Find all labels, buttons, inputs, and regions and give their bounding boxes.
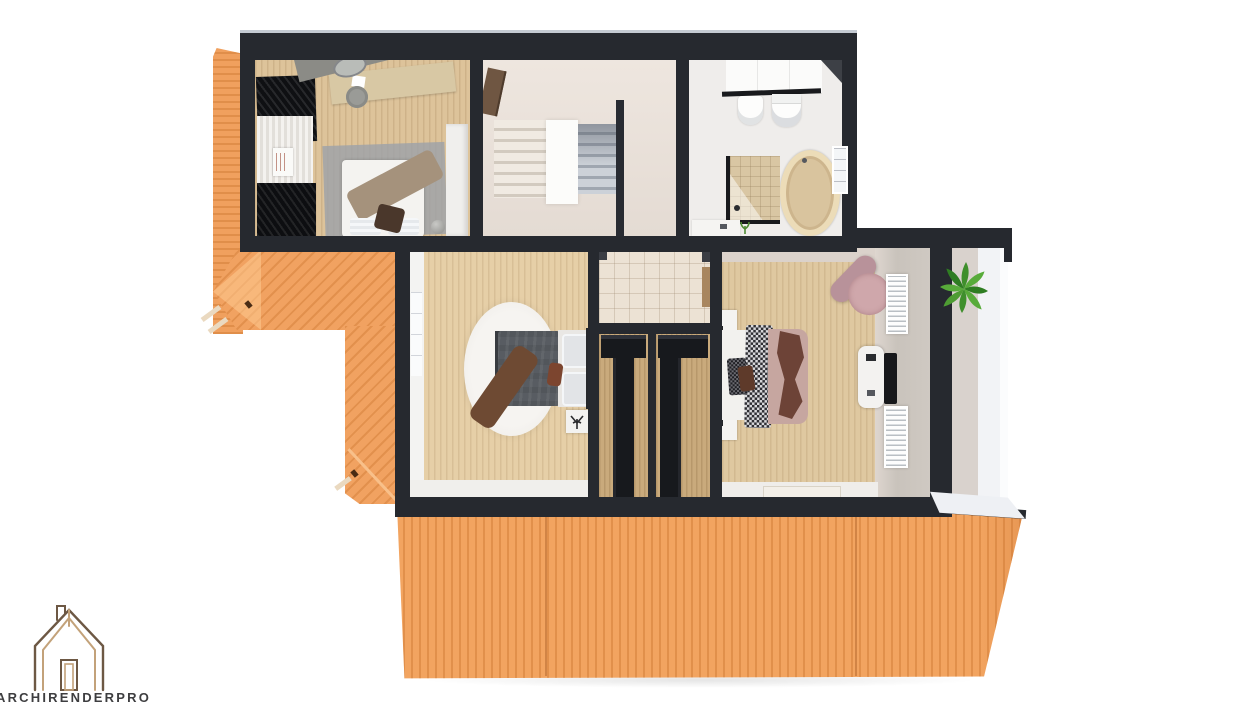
wall-upper-left xyxy=(240,33,255,252)
console-item xyxy=(866,354,876,361)
wall-closet-mid-divider xyxy=(648,334,656,497)
panel-seam xyxy=(789,59,790,93)
floor-plan-render: ARCHIRENDERPRO xyxy=(0,0,1240,720)
wall-divider-bed2-closets xyxy=(588,248,599,497)
watermark-logo: ARCHIRENDERPRO xyxy=(0,594,175,718)
dresser-white xyxy=(273,148,293,176)
wall-upper-bottom xyxy=(240,236,857,252)
bidet xyxy=(738,96,763,125)
shower-glass xyxy=(726,156,780,224)
panel-seam xyxy=(757,59,758,93)
vanity-low xyxy=(692,220,740,236)
wall-lower-bottom xyxy=(395,497,942,517)
room-bedroom-3 xyxy=(722,248,930,497)
wall-face-south xyxy=(410,480,588,497)
roof-seam xyxy=(855,506,857,676)
door-wood xyxy=(702,267,710,307)
wall-closet-hall-divider xyxy=(599,323,710,334)
dresser-louvers xyxy=(276,153,288,171)
wall-divider-stairs-bath xyxy=(676,59,689,236)
watermark-text: ARCHIRENDERPRO xyxy=(0,690,151,705)
wall-upper-right xyxy=(842,33,857,252)
tv xyxy=(884,353,897,404)
room-closet-right xyxy=(656,334,710,497)
shower-head-dark xyxy=(734,205,740,211)
vase-sphere xyxy=(431,220,445,234)
wall-balcony-corner xyxy=(1004,228,1012,262)
staircase-flight-right xyxy=(578,124,618,194)
wardrobe-black-t-column xyxy=(613,358,634,497)
room-stair-hall xyxy=(483,59,676,236)
balcony-floor-rim xyxy=(1000,248,1008,512)
room-bedroom-2 xyxy=(410,248,588,497)
room-closet-left xyxy=(599,334,648,497)
tv-console xyxy=(858,346,884,408)
wardrobe-black xyxy=(257,183,316,236)
cabinet-tall-white xyxy=(446,124,468,236)
wall-divider-bed1-stairs xyxy=(470,59,483,236)
wardrobe-black-t-column xyxy=(660,358,681,497)
roof-right-shade xyxy=(979,500,1025,682)
wardrobe-black-t-bar xyxy=(601,335,646,358)
room-bathroom xyxy=(689,59,842,236)
console-item xyxy=(867,390,875,396)
toilet xyxy=(772,94,801,127)
wall-lower-left xyxy=(395,236,410,517)
plant-sprig-icon xyxy=(737,219,753,235)
window-west xyxy=(411,292,422,376)
staircase-flight-left xyxy=(494,120,547,198)
radiator-panel-bottom xyxy=(884,406,908,468)
roof-connector-strip xyxy=(345,326,397,504)
plant-green-icon xyxy=(934,256,994,322)
roof-main-lower xyxy=(395,500,1025,682)
stair-landing xyxy=(546,120,578,204)
room-hall-tiled xyxy=(599,248,710,323)
stair-wall-stub xyxy=(616,100,624,236)
wall-divider-closets-bed3 xyxy=(710,248,722,497)
plant-sprig-icon xyxy=(568,411,586,431)
wardrobe-black-t-bar xyxy=(658,335,708,358)
wall-upper-top xyxy=(240,33,857,60)
vanity-item xyxy=(720,224,727,229)
wall-corner-dark xyxy=(820,59,842,83)
toilet-tank xyxy=(772,94,801,104)
room-bedroom-1 xyxy=(255,59,470,236)
tub-faucet xyxy=(802,158,807,163)
house-outline-icon xyxy=(25,596,125,692)
bathtub-oval xyxy=(780,150,840,236)
roof-left-gable xyxy=(213,250,397,330)
stool-round xyxy=(346,86,368,108)
radiator-panel-top xyxy=(886,274,908,334)
roof-seam xyxy=(545,504,547,676)
bathroom-window xyxy=(832,146,848,194)
